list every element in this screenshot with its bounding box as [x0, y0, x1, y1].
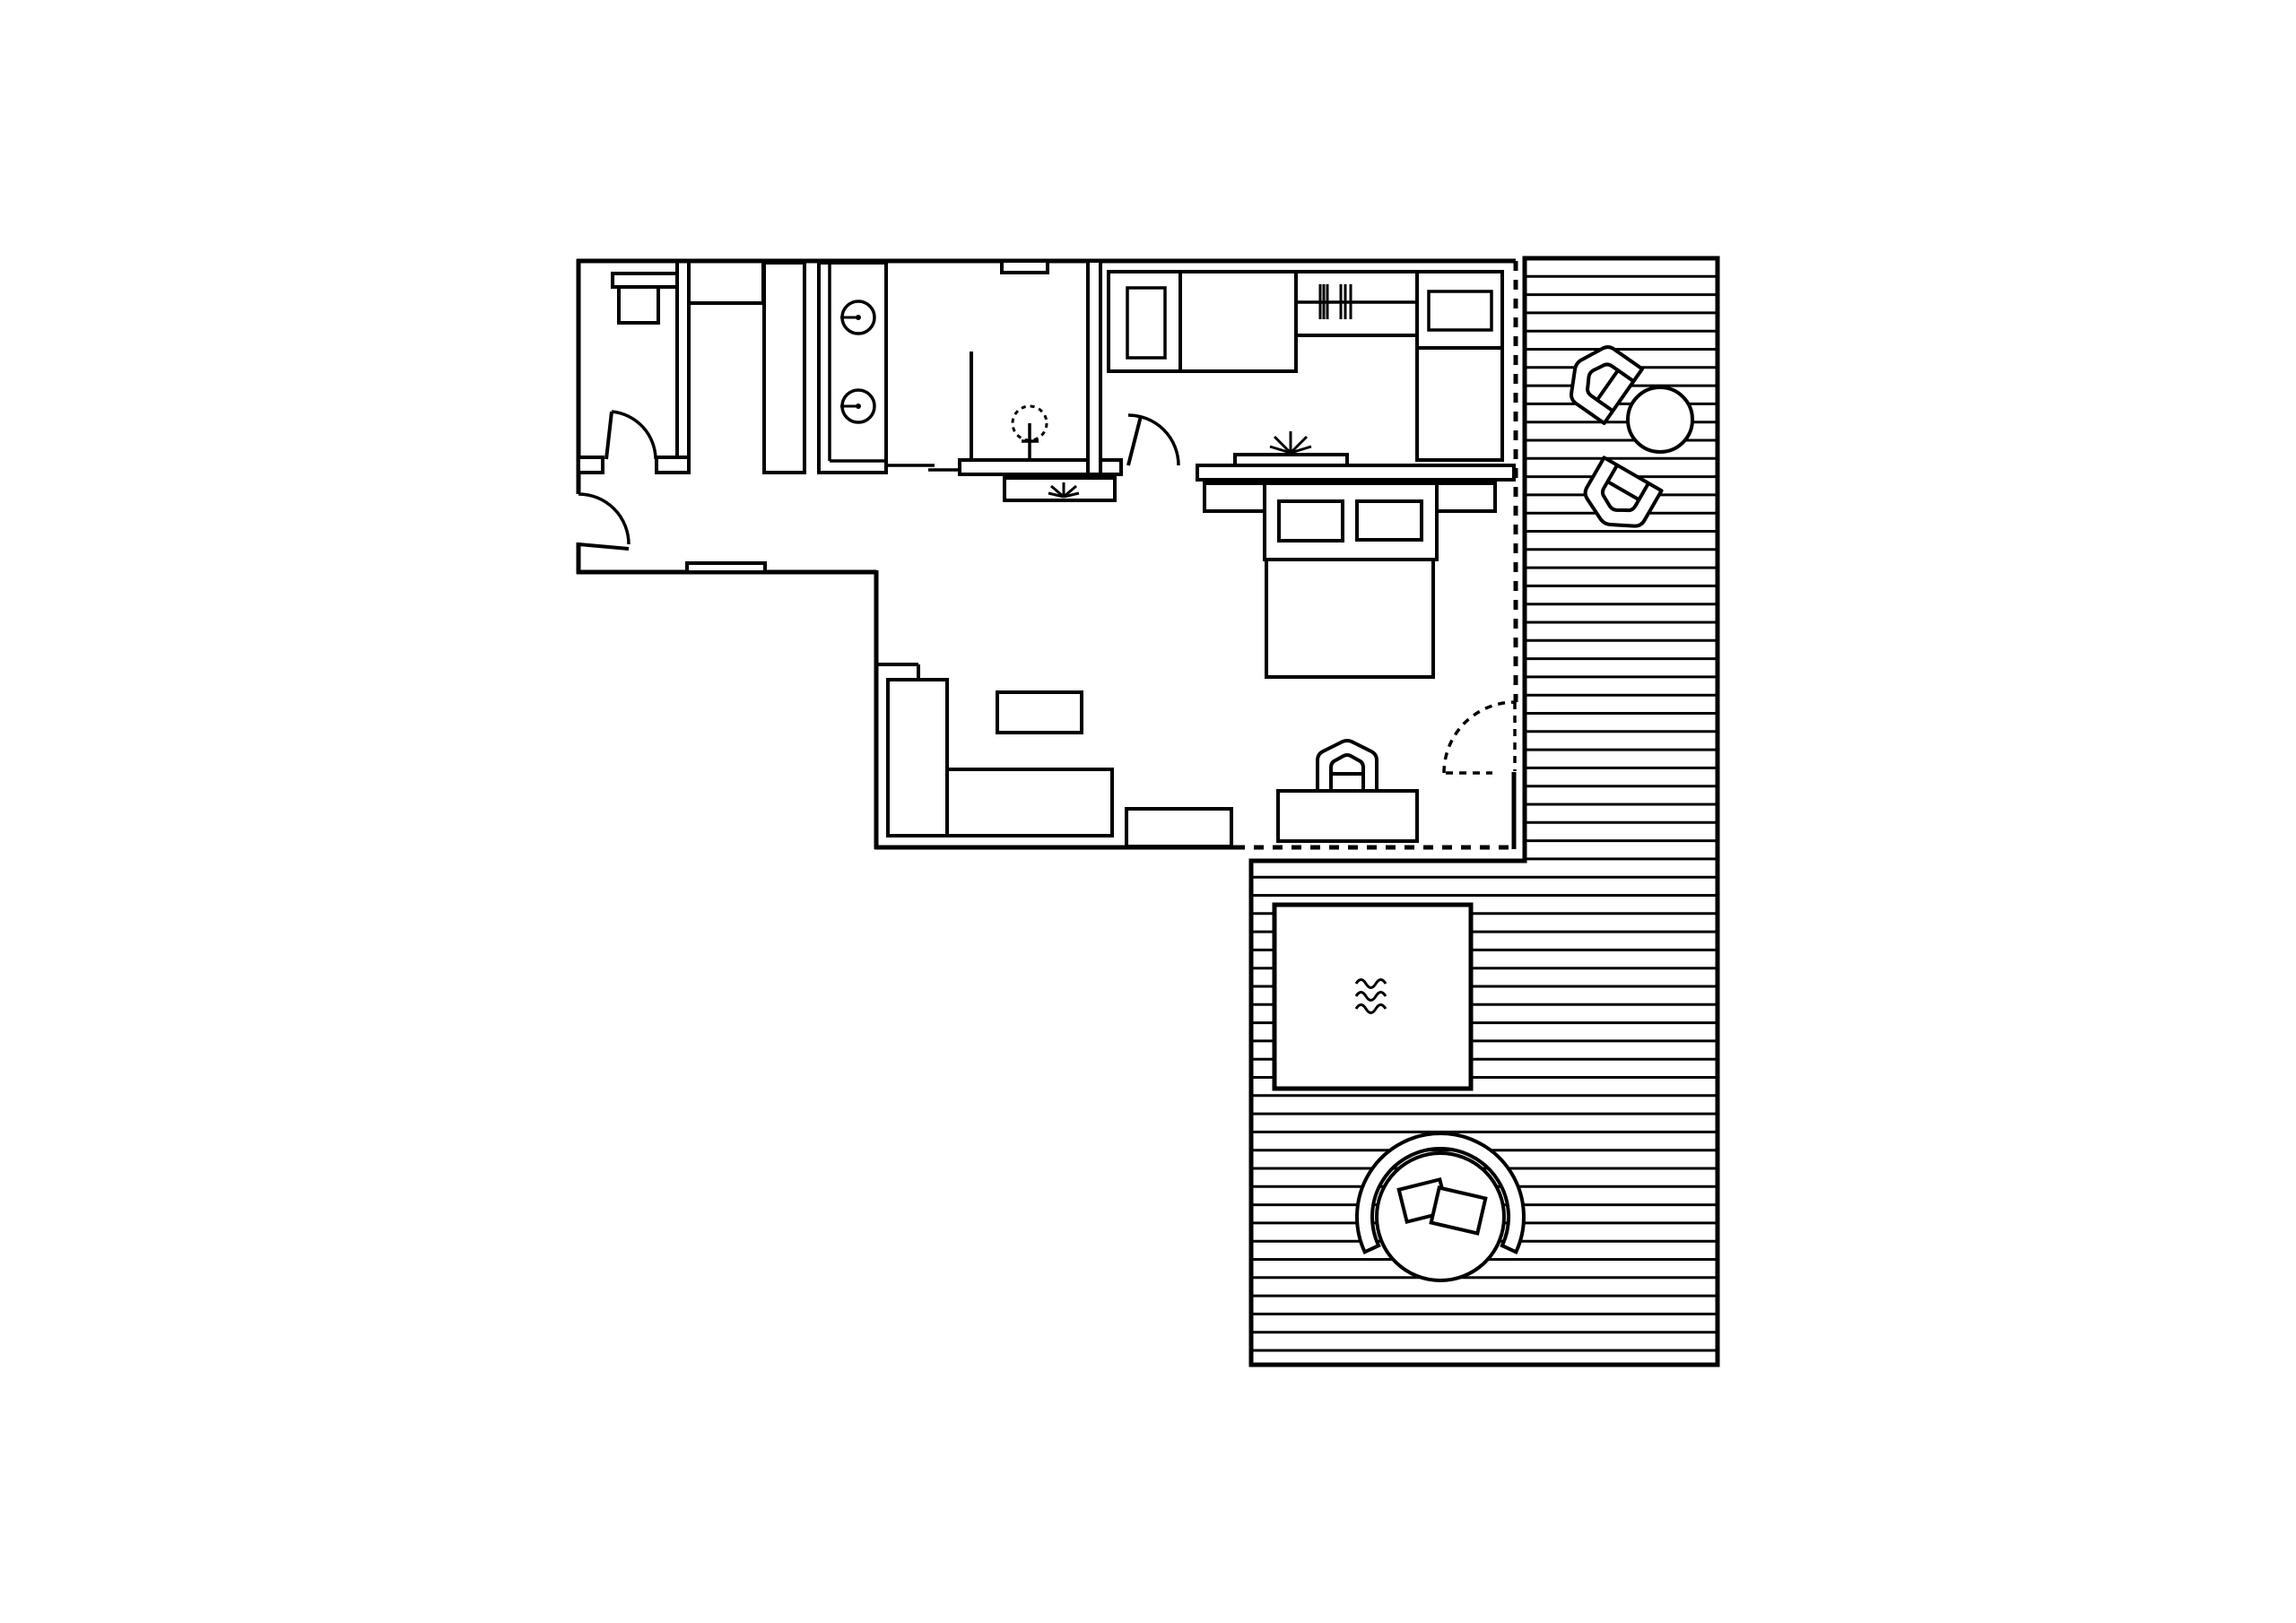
- chair-outline: [1576, 457, 1661, 539]
- floor-plan-drawing: [0, 0, 2296, 1623]
- glass-door-swing-arc: [1444, 702, 1515, 773]
- entry-door-leaf: [578, 544, 629, 549]
- tall-cabinet: [1417, 348, 1502, 460]
- shower-curb: [960, 460, 1088, 474]
- deck-round-table: [1628, 387, 1692, 452]
- sofa-section-vertical: [888, 680, 947, 836]
- entry-door-swing-arc: [578, 494, 629, 544]
- desk-chair: [1318, 741, 1377, 791]
- chair-outline: [1318, 741, 1377, 791]
- console-ledge: [1235, 455, 1347, 465]
- toilet-bowl: [619, 287, 658, 323]
- sink-drain: [856, 404, 861, 409]
- fridge-inner: [1429, 291, 1492, 330]
- shower-curb-ext: [1100, 460, 1121, 474]
- kitchen-counter: [1180, 272, 1296, 371]
- toilet-tank: [613, 273, 677, 287]
- tall-closet: [764, 263, 804, 473]
- wc-wall-stub-right: [657, 457, 689, 473]
- wc-door-swing-arc: [612, 412, 656, 459]
- ottoman: [1126, 809, 1231, 846]
- desk: [1278, 791, 1417, 841]
- bed-headboard: [1265, 483, 1437, 560]
- nightstand-left: [1205, 483, 1265, 511]
- nightstand-right: [1437, 483, 1495, 511]
- floor-plan-page: [0, 0, 2296, 1623]
- sofa-section-horizontal: [947, 769, 1112, 836]
- kitchen-door-leaf: [1128, 416, 1141, 465]
- headboard-console: [1197, 465, 1514, 480]
- kitchen-sink-basin: [1127, 288, 1165, 358]
- wc-wall-stub-left: [578, 457, 603, 473]
- wc-door-leaf: [606, 412, 612, 459]
- deck-lounge-chair-2: [1576, 457, 1661, 539]
- sink-drain: [856, 315, 861, 320]
- coffee-table: [997, 692, 1082, 733]
- bath-wall: [1088, 261, 1100, 474]
- plunge-pool: [1274, 905, 1471, 1089]
- window: [687, 563, 765, 572]
- bed: [1266, 560, 1433, 677]
- shower-niche: [1002, 261, 1048, 273]
